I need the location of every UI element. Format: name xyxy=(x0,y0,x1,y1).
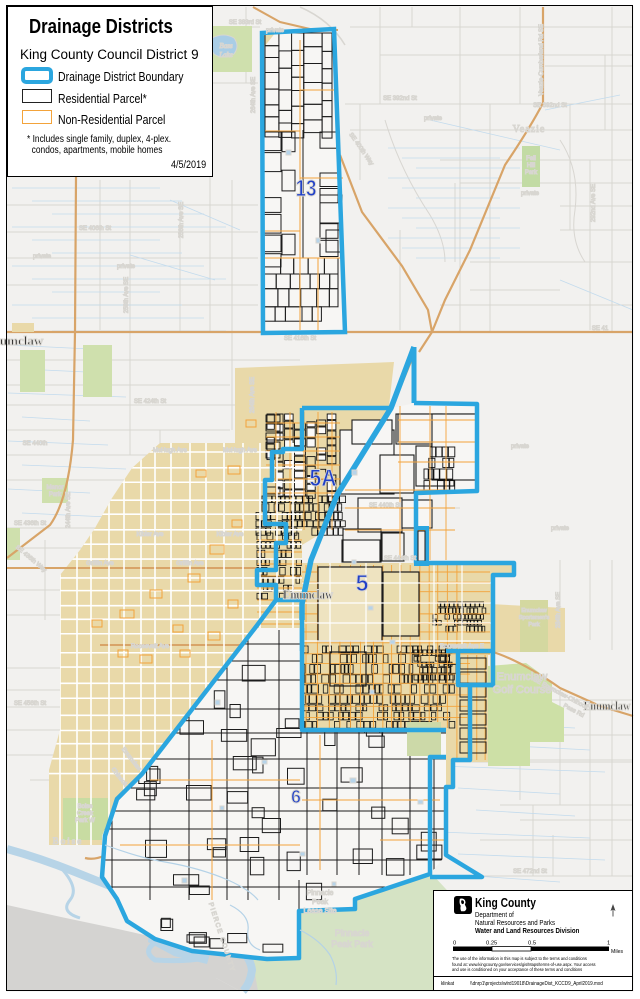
svg-text:0.5: 0.5 xyxy=(528,941,536,947)
svg-text:1: 1 xyxy=(607,941,610,947)
svg-text:0: 0 xyxy=(453,941,456,947)
svg-text:0.25: 0.25 xyxy=(486,941,497,947)
svg-text:Miles: Miles xyxy=(611,949,624,955)
